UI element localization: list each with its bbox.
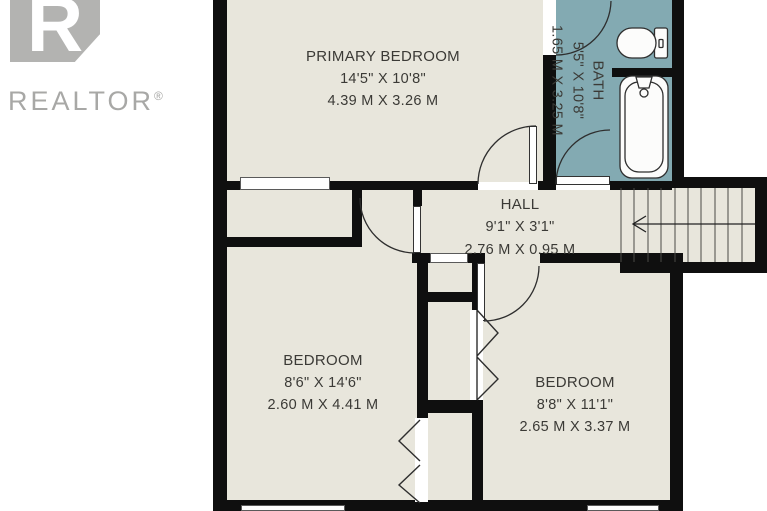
wall — [610, 181, 672, 190]
room-label-primary-bedroom: PRIMARY BEDROOM 14'5" X 10'8" 4.39 M X 3… — [273, 46, 493, 112]
floor-plan: { "logo": { "letter": "R", "text": "REAL… — [0, 0, 767, 511]
room-label-bedroom-right: BEDROOM 8'8" X 11'1" 2.65 M X 3.37 M — [475, 372, 675, 438]
room-dimensions-metric: 2.76 M X 0.95 M — [410, 239, 630, 262]
window — [240, 177, 330, 190]
room-label-hall: HALL 9'1" X 3'1" 2.76 M X 0.95 M — [410, 193, 630, 262]
wall — [417, 292, 483, 302]
room-name: BEDROOM — [475, 372, 675, 394]
room-dimensions-imperial: 8'8" X 11'1" — [475, 394, 675, 416]
window — [587, 505, 659, 511]
room-name: HALL — [410, 193, 630, 216]
window — [241, 505, 345, 511]
room-dimensions-imperial: 14'5" X 10'8" — [273, 68, 493, 90]
room-label-bath: BATH 5'5" X 10'8" 1.65 M X 3.25 M — [546, 0, 609, 166]
wall — [620, 262, 767, 273]
room-dimensions-imperial: 5'5" X 10'8" — [567, 0, 588, 166]
room-dimensions-metric: 4.39 M X 3.26 M — [273, 90, 493, 112]
room-dimensions-metric: 1.65 M X 3.25 M — [546, 0, 567, 166]
room-name: BEDROOM — [223, 350, 423, 372]
realtor-wordmark: REALTOR® — [8, 86, 163, 117]
realtor-logo-letter: R — [27, 0, 83, 55]
room-dimensions-metric: 2.65 M X 3.37 M — [475, 416, 675, 438]
wall — [213, 0, 227, 511]
registered-mark: ® — [154, 89, 163, 103]
door-leaf — [529, 126, 537, 184]
closet-floor — [227, 190, 352, 237]
realtor-logo: R — [10, 0, 100, 62]
room-dimensions-imperial: 9'1" X 3'1" — [410, 216, 630, 239]
wall — [352, 181, 362, 247]
room-dimensions-imperial: 8'6" X 14'6" — [223, 372, 423, 394]
wall — [538, 181, 556, 190]
room-name: BATH — [588, 0, 609, 166]
room-dimensions-metric: 2.60 M X 4.41 M — [223, 394, 423, 416]
wall — [672, 177, 756, 188]
door-leaf — [556, 176, 610, 185]
bifold-opening — [415, 418, 428, 502]
wall — [226, 237, 362, 247]
room-name: PRIMARY BEDROOM — [273, 46, 493, 68]
wall — [672, 0, 684, 178]
wall — [417, 400, 483, 413]
wall — [755, 177, 767, 273]
wall — [612, 68, 672, 77]
room-label-bedroom-left: BEDROOM 8'6" X 14'6" 2.60 M X 4.41 M — [223, 350, 423, 416]
